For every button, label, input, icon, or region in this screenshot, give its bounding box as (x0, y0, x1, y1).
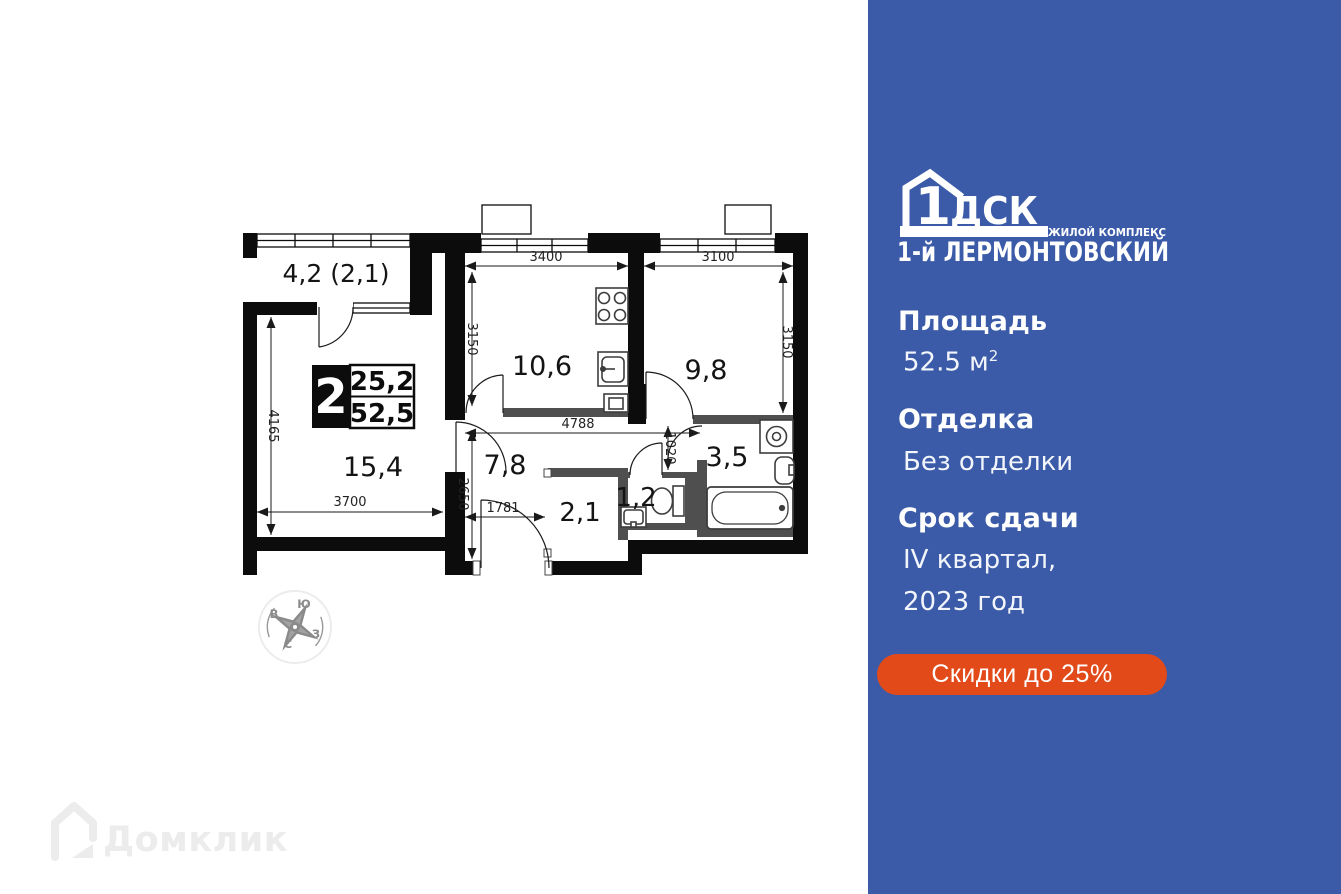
area-sup: 2 (989, 347, 999, 365)
dim-bedroom-height: 3150 (779, 325, 794, 358)
room-label-living: 15,4 (343, 452, 403, 483)
room-label-bedroom: 9,8 (685, 355, 728, 386)
door-jambs (473, 469, 552, 575)
compass-top: Ю (297, 597, 311, 611)
finish-value: Без отделки (903, 447, 1073, 477)
vent-shaft-bedroom (725, 205, 771, 234)
bathtub-icon (707, 487, 793, 529)
dim-hall-height: 2650 (455, 477, 470, 510)
logo-complex-name: 1-й ЛЕРМОНТОВСКИЙ (897, 236, 1169, 268)
room-label-balcony: 4,2 (2,1) (283, 259, 390, 288)
dim-kitchen-height: 3150 (464, 322, 479, 355)
room-label-hallway: 7,8 (484, 450, 527, 481)
vent-shaft-kitchen (482, 205, 531, 234)
discount-button[interactable]: Скидки до 25% (877, 654, 1167, 695)
compass-bottom: С (284, 637, 292, 651)
compass-left: В (270, 607, 279, 621)
kitchen-duct-icon (604, 394, 628, 412)
compass-right: З (312, 627, 320, 641)
wc-door (630, 443, 662, 475)
room-label-kitchen: 10,6 (512, 351, 572, 382)
area-badge: 2 25,2 52,5 (312, 365, 414, 429)
dim-nook: 1020 (662, 431, 677, 464)
area-label: Площадь (898, 306, 1047, 337)
deadline-line1: IV квартал, (903, 545, 1056, 575)
deadline-label: Срок сдачи (898, 503, 1079, 534)
dim-hall-total: 4788 (561, 417, 594, 432)
room-label-wc: 1,2 (615, 483, 656, 513)
logo-letters: ДСК (950, 189, 1038, 233)
dim-living-height: 4165 (265, 409, 280, 442)
dim-kitchen-width: 3400 (529, 250, 562, 265)
badge-living-area: 25,2 (350, 367, 414, 397)
compass-icon: Ю В З С (258, 590, 332, 664)
stove-icon (596, 288, 628, 324)
finish-label: Отделка (898, 404, 1034, 435)
room-label-closet: 2,1 (559, 498, 600, 528)
listing-card: 3400 3100 3150 3150 4165 3700 2650 1781 … (0, 0, 1341, 894)
brand-logo: 1 ДСК ЖИЛОЙ КОМПЛЕКС 1-й ЛЕРМОНТОВСКИЙ (896, 168, 1216, 268)
info-panel: 1 ДСК ЖИЛОЙ КОМПЛЕКС 1-й ЛЕРМОНТОВСКИЙ П… (868, 0, 1341, 894)
logo-number: 1 (915, 177, 951, 237)
deadline-line2: 2023 год (903, 587, 1025, 617)
badge-total-area: 52,5 (350, 399, 414, 429)
kitchen-sink-icon (598, 352, 628, 386)
dim-living-width: 3700 (333, 495, 366, 510)
badge-rooms-count: 2 (314, 369, 347, 425)
area-value: 52.5 м2 (903, 347, 998, 378)
bath-sink-icon (775, 457, 794, 484)
dim-bedroom-width: 3100 (701, 250, 734, 265)
floor-plan: 3400 3100 3150 3150 4165 3700 2650 1781 … (0, 0, 868, 894)
room-label-bathroom: 3,5 (706, 442, 749, 473)
watermark-text: Домклик (103, 820, 288, 860)
dim-hall-width: 1781 (486, 501, 519, 516)
washing-machine-icon (760, 420, 793, 453)
watermark-house-icon (55, 806, 93, 858)
watermark: Домклик (55, 806, 288, 860)
